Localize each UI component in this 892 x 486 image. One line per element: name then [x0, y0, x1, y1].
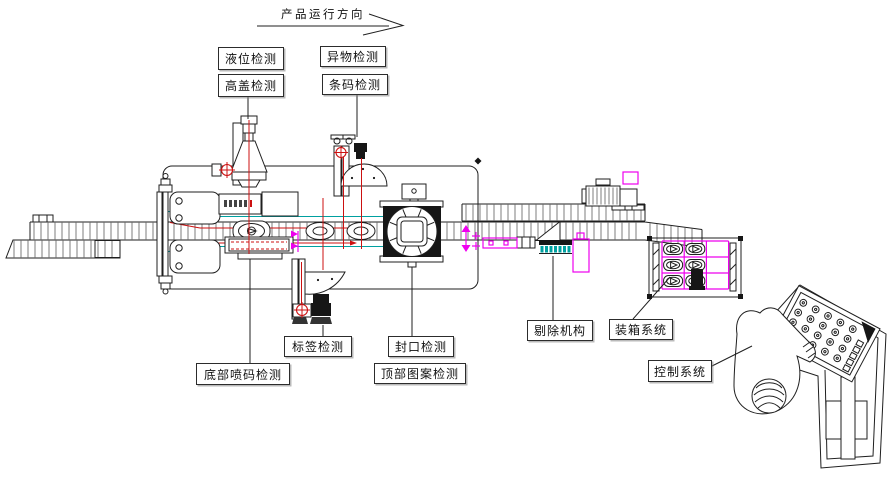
infeed-conveyor-lower: [6, 240, 120, 258]
control-station: [734, 285, 886, 468]
carton-packing-station: [647, 236, 743, 299]
callout-top-pattern: 顶部图案检测: [374, 363, 466, 384]
callout-liquid-level: 液位检测: [218, 47, 284, 70]
infeed-conveyor-upper: [33, 215, 53, 222]
machinery-drawing: [0, 0, 892, 486]
callout-boxing: 装箱系统: [609, 319, 673, 340]
callout-high-cap: 高盖检测: [218, 74, 284, 97]
callout-foreign-object: 异物检测: [320, 46, 386, 67]
entrance-guide-assembly: [157, 174, 220, 295]
callout-control: 控制系统: [648, 360, 712, 382]
callout-label-check: 标签检测: [284, 336, 352, 357]
callout-barcode: 条码检测: [322, 74, 388, 95]
callout-seal: 封口检测: [388, 336, 454, 357]
seal-inspection-ring: [380, 184, 443, 267]
monitor-side-view: [841, 377, 855, 459]
diagram-canvas: 产品运行方向 液位检测 高盖检测 异物检测 条码检测 标签检测 底部喷码检测 封…: [0, 0, 892, 486]
liquid-level-sensor: [212, 116, 267, 187]
callout-reject: 剔除机构: [527, 320, 593, 341]
bottom-code-device: [225, 237, 293, 259]
reject-pusher: [539, 240, 572, 254]
callout-bottom-code: 底部喷码检测: [196, 363, 290, 385]
nameplate: [219, 192, 298, 216]
direction-label: 产品运行方向: [281, 6, 365, 22]
